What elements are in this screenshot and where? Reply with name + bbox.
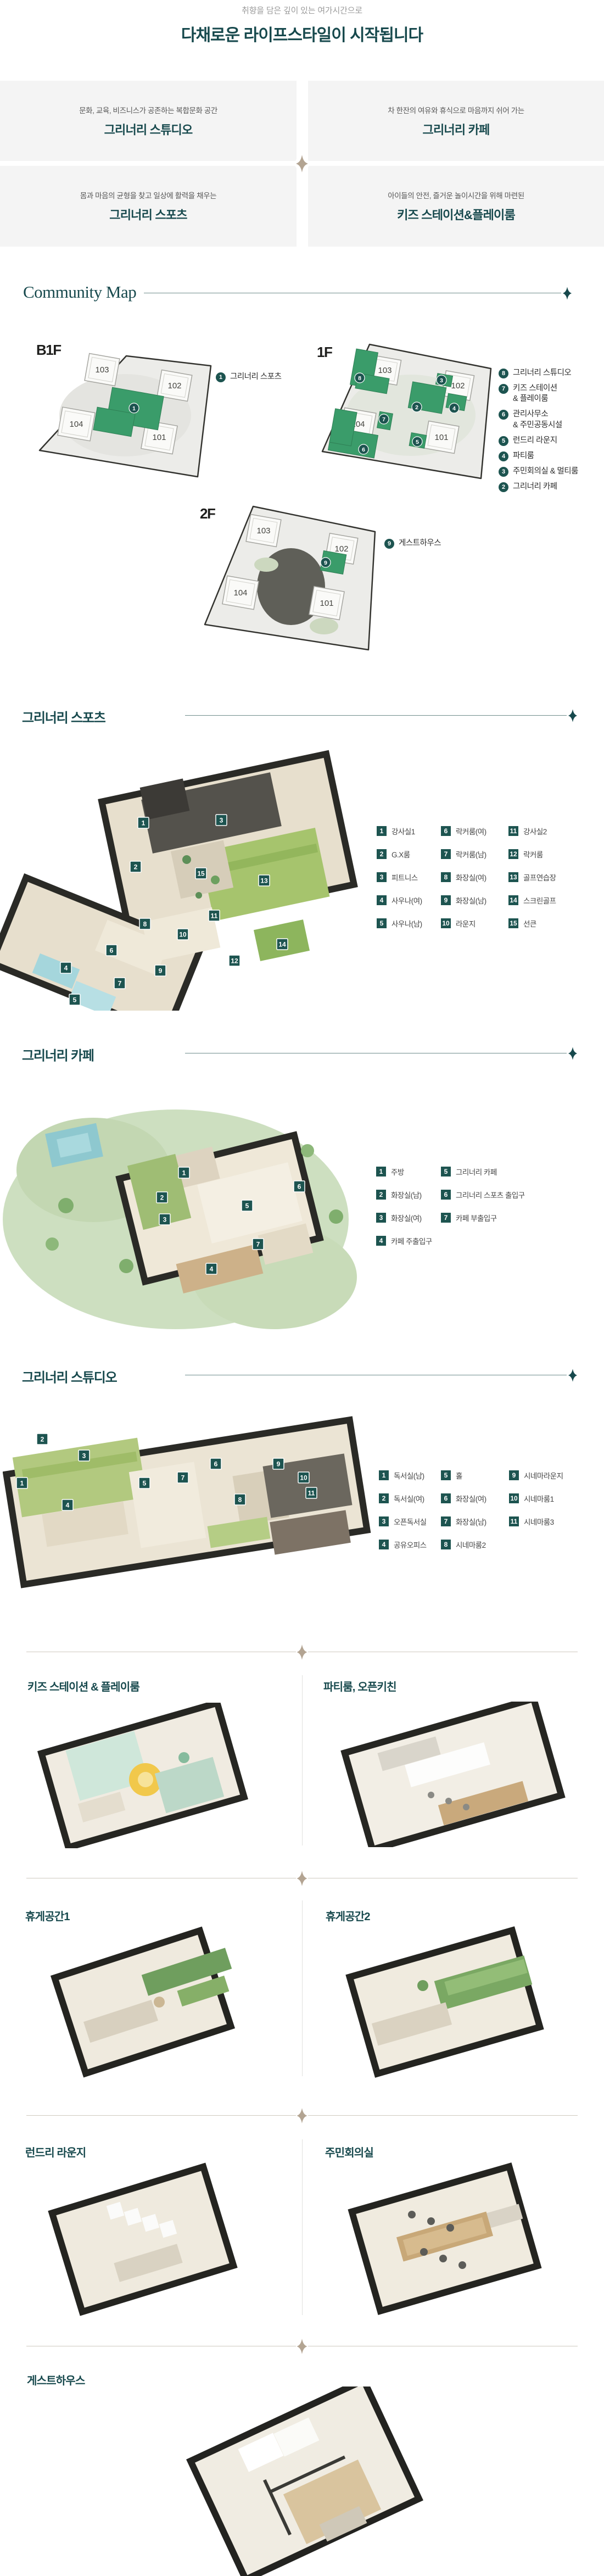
hero-title: 다채로운 라이프스타일이 시작됩니다 [0,21,604,46]
floor-plan-studio: 2314576891011 [3,1395,376,1623]
divider-diamond-icon [296,1870,308,1887]
legend-label: 런드리 라운지 [513,436,557,446]
svg-text:7: 7 [181,1474,185,1482]
svg-text:6: 6 [298,1183,301,1191]
plan-badge: 10 [177,929,188,940]
legend-number-badge: 9 [384,539,394,549]
building-number: 102 [334,544,348,554]
svg-text:13: 13 [260,877,268,885]
plan-badge: 4 [206,1263,217,1274]
feature-title: 그리너리 스튜디오 [104,120,193,138]
legend-item: 1독서실(남) [379,1470,441,1481]
legend-number-badge: 4 [377,895,387,905]
legend-label: 강사실1 [392,826,415,837]
legend-column: 5홀6화장실(여)7화장실(남)8시네마룸2 [441,1470,509,1562]
svg-text:7: 7 [382,416,385,423]
map-legend-item: 8그리너리 스튜디오 [499,368,578,378]
plan-badge: 13 [259,875,270,886]
legend-item: 5그리너리 카페 [441,1166,584,1177]
building-number: 103 [256,526,270,536]
floor-plan-sports: 123151311810612144975 [0,736,362,1011]
legend-number-badge: 8 [499,369,508,378]
legend-number-badge: 1 [216,372,226,382]
legend-number-badge: 10 [509,1493,519,1503]
legend-label: 독서실(남) [394,1470,424,1481]
legend-item: 9시네마라운지 [509,1470,602,1481]
legend-column: 5그리너리 카페6그리너리 스포츠 출입구7카페 부출입구 [441,1166,584,1258]
legend-number-badge: 10 [441,918,451,928]
svg-text:9: 9 [324,560,327,566]
legend-number-badge: 13 [508,872,518,882]
map-legend-item: 4파티룸 [499,451,578,461]
feature-box-cafe: 차 한잔의 여유와 휴식으로 마음까지 쉬어 가는 그리너리 카페 [308,81,604,161]
legend-label: 관리사무소 & 주민공동시설 [513,409,562,430]
plan-badge: 9 [273,1458,284,1469]
header-rule [144,293,561,293]
legend-label: 그리너리 스포츠 [230,372,281,382]
svg-text:2: 2 [160,1194,164,1202]
building-number: 101 [434,433,448,442]
building-number: 104 [69,420,83,429]
map-legend-2f: 9게스트하우스 [384,538,441,549]
legend-number-badge: 2 [376,1190,386,1200]
legend-item: 6화장실(여) [441,1493,509,1504]
site-map-svg: 1031021041011 [37,338,216,481]
map-badge: 7 [379,414,389,424]
svg-text:4: 4 [452,405,456,412]
legend-number-badge: 9 [441,895,451,905]
floor-plan-svg [335,2160,555,2318]
svg-text:11: 11 [308,1490,315,1497]
map-badge: 4 [449,403,459,413]
section-title-laundry: 런드리 라운지 [25,2144,86,2160]
building-number: 103 [95,365,109,375]
plan-badge: 6 [106,945,117,956]
svg-text:7: 7 [118,980,122,988]
building-number: 102 [451,381,465,391]
map-badge: 1 [129,403,139,413]
floor-plan-kids [19,1703,266,1848]
map-building: 103 [246,515,281,547]
legend-item: 7카페 부출입구 [441,1212,584,1223]
legend-item: 8시네마룸2 [441,1539,509,1550]
svg-text:8: 8 [143,921,147,928]
legend-number-badge: 11 [508,826,518,836]
legend-label: 화장실(남) [391,1189,422,1200]
svg-text:9: 9 [159,967,163,975]
plan-badge: 6 [210,1458,221,1469]
feature-desc: 아이들의 안전, 즐거운 놀이시간을 위해 마련된 [388,189,524,200]
building-number: 104 [233,588,247,598]
legend-cafe: 1주방2화장실(남)3화장실(여)4카페 주출입구5그리너리 카페6그리너리 스… [376,1166,584,1258]
building-number: 101 [152,433,166,442]
sparkle-diamond-icon [294,153,310,175]
map-legend-item: 5런드리 라운지 [499,436,578,446]
svg-text:6: 6 [362,447,365,453]
legend-column: 9시네마라운지10시네마룸111시네마룸3 [509,1470,602,1562]
plan-badge: 14 [277,939,288,950]
legend-item: 9화장실(남) [441,895,508,906]
legend-label: 홀 [456,1470,462,1481]
legend-studio: 1독서실(남)2독서실(여)3오픈독서실4공유오피스5홀6화장실(여)7화장실(… [379,1470,602,1562]
page: 취향을 담은 깊이 있는 여가시간으로 다채로운 라이프스타일이 시작됩니다 문… [0,0,604,2576]
svg-text:3: 3 [220,817,223,824]
floor-plan-svg: 1235647 [0,1079,362,1343]
section-title-rest2: 휴게공간2 [326,1908,370,1923]
svg-text:5: 5 [73,996,77,1004]
legend-label: G.X룸 [392,849,410,860]
legend-label: 시네마룸2 [456,1539,486,1550]
legend-label: 화장실(남) [456,1516,486,1527]
legend-number-badge: 1 [379,1470,389,1480]
svg-text:6: 6 [214,1460,218,1468]
legend-label: 키즈 스테이션 & 플레이룸 [513,383,557,404]
svg-text:1: 1 [142,819,146,827]
map-building: 103 [85,354,120,386]
plan-badge: 1 [138,817,149,828]
svg-text:2: 2 [134,863,138,871]
legend-label: 오픈독서실 [394,1516,427,1527]
svg-text:1: 1 [182,1169,186,1177]
legend-item: 8화장실(여) [441,872,508,883]
plan-badge: 5 [139,1477,150,1488]
legend-label: 화장실(남) [456,895,486,906]
legend-item: 13골프연습장 [508,872,602,883]
legend-label: 피트니스 [392,872,418,883]
legend-item: 2화장실(남) [376,1189,441,1200]
legend-number-badge: 5 [499,436,508,446]
floor-plan-svg [321,1702,585,1847]
map-legend-item: 3주민회의실 & 멀티룸 [499,466,578,477]
plan-badge: 11 [209,910,220,921]
svg-text:4: 4 [64,964,68,972]
legend-item: 6그리너리 스포츠 출입구 [441,1189,584,1200]
map-legend-b1f: 1그리너리 스포츠 [216,372,281,382]
map-building: 101 [424,421,459,454]
plan-badge: 9 [155,965,166,976]
feature-title: 그리너리 스포츠 [109,205,187,223]
feature-title: 키즈 스테이션&플레이룸 [397,205,515,223]
legend-number-badge: 5 [377,918,387,928]
map-building: 104 [222,576,259,609]
divider-diamond-icon [296,2338,308,2355]
legend-number-badge: 4 [376,1236,386,1246]
plan-badge: 7 [253,1239,264,1250]
floor-plan-svg [38,2161,247,2318]
map-badge: 8 [355,373,365,383]
legend-number-badge: 14 [508,895,518,905]
plan-badge: 5 [69,994,80,1005]
building-number: 102 [167,381,181,391]
legend-number-badge: 3 [377,872,387,882]
floor-plan-svg [19,1703,266,1848]
building-number: 101 [320,599,333,608]
legend-column: 1독서실(남)2독서실(여)3오픈독서실4공유오피스 [379,1470,441,1562]
legend-label: 화장실(여) [391,1212,422,1223]
legend-item: 10시네마룸1 [509,1493,602,1504]
legend-number-badge: 1 [376,1167,386,1177]
map-legend-item: 7키즈 스테이션 & 플레이룸 [499,383,578,404]
section-title-guest: 게스트하우스 [27,2372,85,2388]
svg-text:9: 9 [277,1460,281,1468]
site-map-2f: 1031021041019 [200,499,384,651]
legend-label: 스크린골프 [523,895,556,906]
divider-diamond-icon [296,2107,308,2125]
svg-text:10: 10 [179,931,187,939]
legend-label: 그리너리 스포츠 출입구 [456,1189,525,1200]
legend-label: 그리너리 카페 [513,482,557,492]
legend-number-badge: 5 [441,1167,451,1177]
plan-badge: 4 [62,1499,73,1510]
plan-badge: 2 [156,1192,167,1203]
svg-text:2: 2 [41,1436,44,1443]
column-divider [302,1900,303,2076]
svg-text:5: 5 [416,439,419,445]
feature-box-kids: 아이들의 안전, 즐거운 놀이시간을 위해 마련된 키즈 스테이션&플레이룸 [308,166,604,247]
plan-badge: 1 [16,1477,27,1488]
legend-number-badge: 3 [499,467,508,477]
legend-number-badge: 1 [377,826,387,836]
svg-text:4: 4 [210,1265,214,1273]
legend-label: 게스트하우스 [399,538,441,549]
feature-desc: 문화, 교육, 비즈니스가 공존하는 복합문화 공간 [79,104,217,115]
legend-number-badge: 7 [441,849,451,859]
legend-number-badge: 2 [377,849,387,859]
svg-text:8: 8 [358,375,361,382]
svg-text:3: 3 [163,1216,167,1224]
legend-number-badge: 7 [441,1516,451,1526]
section-title-sports: 그리너리 스포츠 [22,707,105,726]
plan-badge: 2 [37,1434,48,1445]
plan-badge: 2 [130,861,141,872]
plan-badge: 3 [216,815,227,826]
floor-plan-party [321,1702,585,1847]
svg-text:11: 11 [211,912,218,920]
svg-text:4: 4 [66,1502,70,1509]
legend-number-badge: 6 [441,1493,451,1503]
site-map-svg: 1031021041018324756 [320,338,501,482]
legend-item: 3화장실(여) [376,1212,441,1223]
legend-label: 화장실(여) [456,872,486,883]
map-building: 104 [58,407,95,441]
map-badge: 9 [321,557,331,567]
floor-plan-svg [178,2387,431,2576]
legend-label: 주민회의실 & 멀티룸 [513,466,578,477]
legend-item: 3오픈독서실 [379,1516,441,1527]
plan-badge: 8 [234,1494,245,1505]
legend-number-badge: 6 [499,410,508,420]
legend-number-badge: 9 [509,1470,519,1480]
legend-item: 15선큰 [508,918,602,929]
legend-item: 1주방 [376,1166,441,1177]
floor-plan-svg [329,1925,560,2079]
map-badge: 2 [412,402,422,412]
legend-label: 독서실(여) [394,1493,424,1504]
legend-label: 선큰 [523,918,536,929]
svg-text:1: 1 [20,1480,24,1487]
legend-column: 11강사실212락커룸13골프연습장14스크린골프15선큰 [508,826,602,941]
legend-number-badge: 6 [441,1190,451,1200]
section-title-party: 파티룸, 오픈키친 [323,1678,396,1694]
header-rule [185,715,567,716]
feature-desc: 몸과 마음의 균형을 찾고 일상에 활력을 채우는 [80,189,216,200]
floor-plan-cafe: 1235647 [0,1079,362,1343]
legend-number-badge: 11 [509,1516,519,1526]
plan-badge: 7 [177,1472,188,1483]
map-building: 101 [309,587,344,620]
divider-diamond-icon [296,1643,308,1661]
svg-text:15: 15 [197,870,205,878]
legend-item: 5홀 [441,1470,509,1481]
map-legend-item: 1그리너리 스포츠 [216,372,281,382]
svg-text:5: 5 [245,1202,249,1210]
plan-badge: 15 [195,868,206,879]
legend-number-badge: 6 [441,826,451,836]
legend-number-badge: 3 [376,1213,386,1223]
legend-number-badge: 7 [499,384,508,394]
legend-label: 화장실(여) [456,1493,486,1504]
section-title-rest1: 휴게공간1 [25,1908,70,1923]
legend-item: 11시네마룸3 [509,1516,602,1527]
legend-number-badge: 12 [508,849,518,859]
header-rule [185,1053,567,1053]
legend-label: 락커룸(여) [456,826,486,837]
legend-number-badge: 5 [441,1470,451,1480]
legend-item: 4카페 주출입구 [376,1235,441,1246]
feature-box-sports: 몸과 마음의 균형을 찾고 일상에 활력을 채우는 그리너리 스포츠 [0,166,297,247]
legend-item: 4공유오피스 [379,1539,441,1550]
floor-plan-laundry [38,2161,247,2318]
header-diamond-icon [568,708,578,723]
map-legend-item: 9게스트하우스 [384,538,441,549]
legend-item: 12락커룸 [508,849,602,860]
feature-title: 그리너리 카페 [423,120,490,138]
legend-number-badge: 4 [499,451,508,461]
legend-label: 공유오피스 [394,1539,427,1550]
plan-badge: 6 [294,1181,305,1192]
plan-badge: 7 [114,978,125,989]
legend-item: 7화장실(남) [441,1516,509,1527]
plan-badge: 8 [139,918,150,929]
map-legend-item: 2그리너리 카페 [499,482,578,492]
legend-item: 14스크린골프 [508,895,602,906]
legend-label: 시네마라운지 [524,1470,563,1481]
legend-number-badge: 4 [379,1540,389,1549]
section-title-kids: 키즈 스테이션 & 플레이룸 [27,1678,139,1694]
legend-item: 7락커룸(남) [441,849,508,860]
legend-label: 시네마룸3 [524,1516,554,1527]
floor-plan-svg: 123151311810612144975 [0,736,362,1011]
legend-label: 시네마룸1 [524,1493,554,1504]
plan-badge: 12 [229,955,240,966]
svg-text:2: 2 [415,404,418,411]
legend-sports: 1강사실12G.X룸3피트니스4사우나(여)5사우나(남)6락커룸(여)7락커룸… [377,826,602,941]
legend-item: 1강사실1 [377,826,441,837]
community-map-title: Community Map [23,282,136,302]
section-title-studio: 그리너리 스튜디오 [22,1367,117,1386]
feature-desc: 차 한잔의 여유와 휴식으로 마음까지 쉬어 가는 [388,104,524,115]
section-title-meeting: 주민회의실 [325,2144,373,2160]
legend-item: 10라운지 [441,918,508,929]
legend-label: 사우나(남) [392,918,422,929]
plan-badge: 11 [306,1487,317,1498]
legend-number-badge: 2 [499,482,508,492]
legend-item: 5사우나(남) [377,918,441,929]
svg-text:5: 5 [143,1480,147,1487]
legend-label: 사우나(여) [392,895,422,906]
legend-label: 그리너리 카페 [456,1166,497,1177]
site-map-1f: 1031021041018324756 [320,338,501,482]
svg-text:6: 6 [110,947,114,955]
legend-label: 파티룸 [513,451,534,461]
legend-item: 11강사실2 [508,826,602,837]
floor-plan-meeting [335,2160,555,2318]
header-diamond-icon [568,1046,578,1061]
svg-text:1: 1 [132,405,136,412]
feature-box-studio: 문화, 교육, 비즈니스가 공존하는 복합문화 공간 그리너리 스튜디오 [0,81,297,161]
plan-badge: 3 [159,1214,170,1225]
svg-text:3: 3 [82,1452,86,1460]
header-rule [185,1375,567,1375]
legend-label: 락커룸(남) [456,849,486,860]
legend-number-badge: 7 [441,1213,451,1223]
header-diamond-icon [568,1368,578,1383]
svg-text:14: 14 [278,941,286,949]
svg-text:8: 8 [238,1496,242,1504]
header-diamond-icon [562,286,572,301]
hero: 취향을 담은 깊이 있는 여가시간으로 다채로운 라이프스타일이 시작됩니다 [0,4,604,46]
legend-number-badge: 15 [508,918,518,928]
legend-number-badge: 3 [379,1516,389,1526]
svg-text:7: 7 [256,1241,260,1248]
legend-label: 카페 주출입구 [391,1235,432,1246]
map-legend-1f: 8그리너리 스튜디오7키즈 스테이션 & 플레이룸6관리사무소 & 주민공동시설… [499,368,578,492]
floor-plan-guest [178,2387,431,2576]
site-map-b1f: 1031021041011 [37,338,216,481]
legend-column: 6락커룸(여)7락커룸(남)8화장실(여)9화장실(남)10라운지 [441,826,508,941]
legend-label: 라운지 [456,918,476,929]
legend-item: 4사우나(여) [377,895,441,906]
column-divider [302,2139,303,2315]
svg-text:12: 12 [231,957,238,965]
plan-badge: 1 [178,1167,189,1178]
legend-number-badge: 8 [441,1540,451,1549]
legend-column: 1주방2화장실(남)3화장실(여)4카페 주출입구 [376,1166,441,1258]
map-legend-item: 6관리사무소 & 주민공동시설 [499,409,578,430]
map-badge: 5 [412,437,422,447]
site-map-svg: 1031021041019 [200,499,384,651]
floor-plan-svg: 2314576891011 [3,1395,376,1623]
plan-badge: 4 [60,962,71,973]
legend-item: 6락커룸(여) [441,826,508,837]
floor-plan-svg [38,1925,247,2079]
legend-label: 그리너리 스튜디오 [513,368,571,378]
legend-label: 강사실2 [523,826,547,837]
hero-subtitle: 취향을 담은 깊이 있는 여가시간으로 [0,4,604,16]
svg-text:10: 10 [300,1474,307,1482]
plan-badge: 5 [242,1200,253,1211]
building-number: 103 [378,366,392,375]
floor-plan-rest1 [38,1925,247,2079]
legend-label: 카페 부출입구 [456,1212,497,1223]
legend-item: 2G.X룸 [377,849,441,860]
map-badge: 6 [359,444,368,454]
legend-label: 골프연습장 [523,872,556,883]
section-title-cafe: 그리너리 카페 [22,1045,94,1064]
plan-badge: 10 [298,1472,309,1483]
legend-label: 주방 [391,1166,404,1177]
legend-column: 1강사실12G.X룸3피트니스4사우나(여)5사우나(남) [377,826,441,941]
